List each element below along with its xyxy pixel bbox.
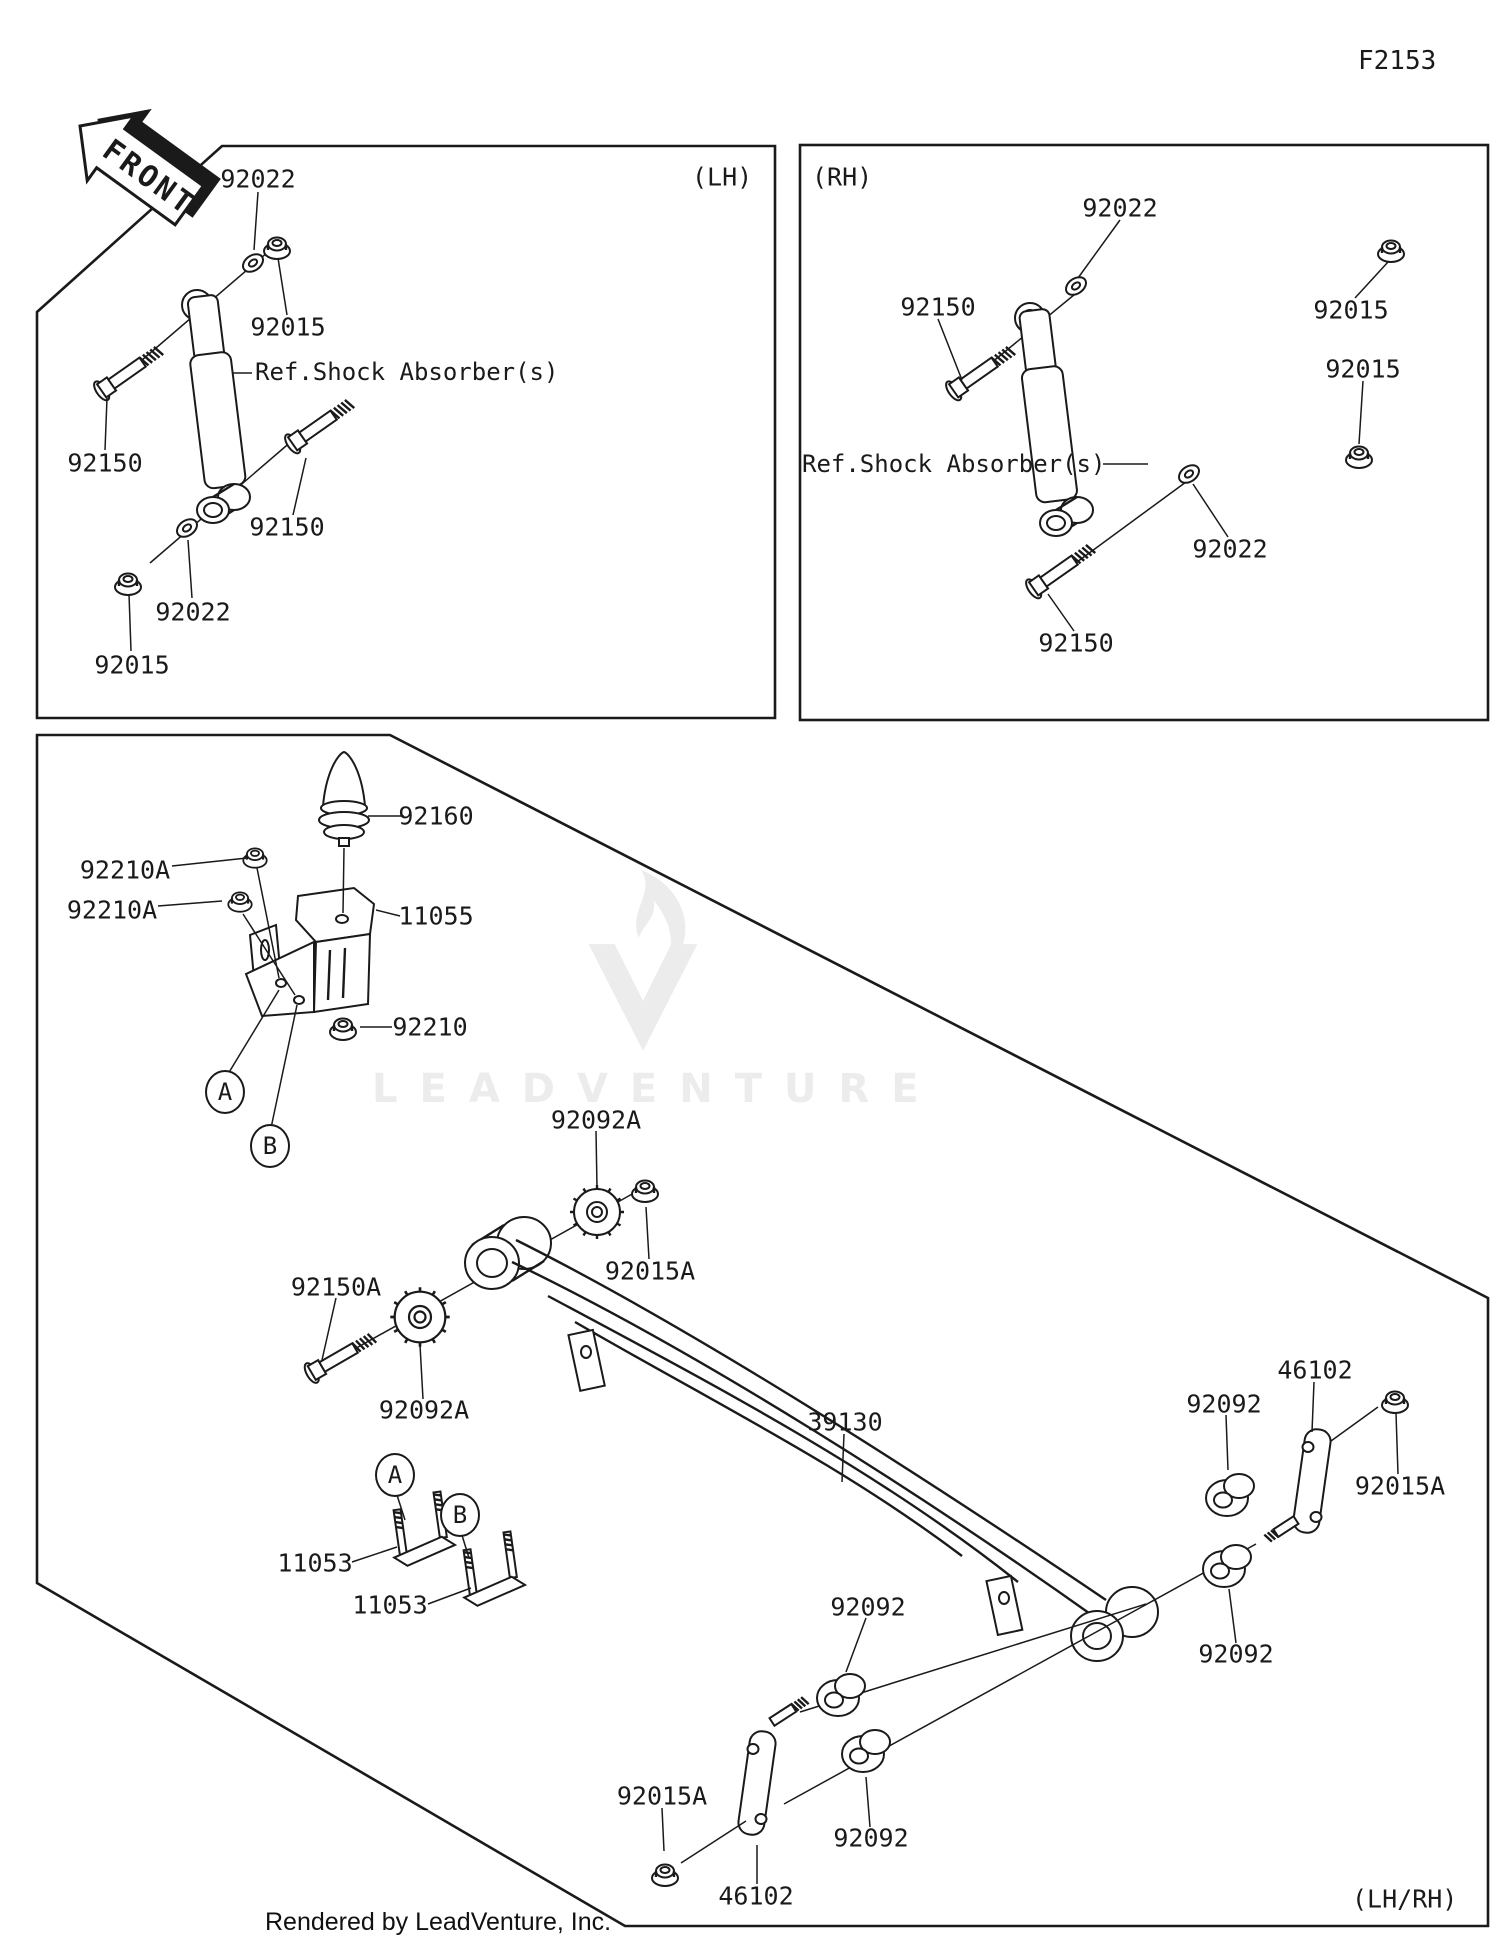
part-label-92092-right-bottom: 92092 — [1198, 1642, 1273, 1667]
part-label-92092a-bottom: 92092A — [379, 1398, 469, 1423]
marker-circle-a: A — [205, 1070, 245, 1114]
marker-a-letter: A — [218, 1078, 232, 1106]
part-label-92092-center-top: 92092 — [830, 1595, 905, 1620]
part-label-92160: 92160 — [398, 804, 473, 829]
part-label-92015-lh-bottom: 92015 — [94, 653, 169, 678]
part-label-92150-lh-lower: 92150 — [249, 515, 324, 540]
part-label-92092a-top: 92092A — [551, 1108, 641, 1133]
parts-diagram-page: LEADVENTURE — [0, 0, 1500, 1938]
part-label-92022-rh-bottom: 92022 — [1192, 537, 1267, 562]
part-label-11053-a: 11053 — [277, 1551, 352, 1576]
part-label-92015-rh-mid: 92015 — [1325, 357, 1400, 382]
lh-panel-title: (LH) — [692, 165, 752, 190]
ref-shock-absorber-label-lh: Ref.Shock Absorber(s) — [255, 360, 558, 384]
part-label-92022-lh-top: 92022 — [220, 167, 295, 192]
part-label-92015a-front: 92015A — [605, 1259, 695, 1284]
rh-panel-title: (RH) — [812, 165, 872, 190]
marker-circle-b2: B — [440, 1493, 480, 1537]
part-label-92022-rh-top: 92022 — [1082, 196, 1157, 221]
part-label-92015a-right: 92015A — [1355, 1474, 1445, 1499]
part-label-92210a-2: 92210A — [67, 898, 157, 923]
ref-shock-absorber-label-rh: Ref.Shock Absorber(s) — [802, 452, 1105, 476]
part-label-11055: 11055 — [398, 904, 473, 929]
marker-b2-letter: B — [453, 1501, 467, 1529]
marker-circle-a2: A — [375, 1453, 415, 1497]
part-label-11053-b: 11053 — [352, 1593, 427, 1618]
part-label-92015-lh-top: 92015 — [250, 315, 325, 340]
part-label-92092-center-bottom: 92092 — [833, 1826, 908, 1851]
part-label-92022-lh-bottom: 92022 — [155, 600, 230, 625]
part-label-92210: 92210 — [392, 1015, 467, 1040]
part-label-92210a-1: 92210A — [80, 858, 170, 883]
part-label-92092-right-top: 92092 — [1186, 1392, 1261, 1417]
part-label-46102-right: 46102 — [1277, 1358, 1352, 1383]
part-label-92015a-center: 92015A — [617, 1784, 707, 1809]
marker-circle-b: B — [250, 1124, 290, 1168]
figure-code: F2153 — [1358, 46, 1436, 76]
part-label-92150-rh-lower: 92150 — [1038, 631, 1113, 656]
side-note-lhrh: (LH/RH) — [1352, 1887, 1457, 1912]
part-label-92150a: 92150A — [291, 1275, 381, 1300]
part-label-92150-lh-upper: 92150 — [67, 451, 142, 476]
marker-a2-letter: A — [388, 1461, 402, 1489]
part-label-92150-rh-upper: 92150 — [900, 295, 975, 320]
part-label-92015-rh-top: 92015 — [1313, 298, 1388, 323]
marker-b-letter: B — [263, 1132, 277, 1160]
part-label-39130: 39130 — [807, 1410, 882, 1435]
render-credit: Rendered by LeadVenture, Inc. — [265, 1908, 611, 1937]
part-label-46102-center: 46102 — [718, 1884, 793, 1909]
